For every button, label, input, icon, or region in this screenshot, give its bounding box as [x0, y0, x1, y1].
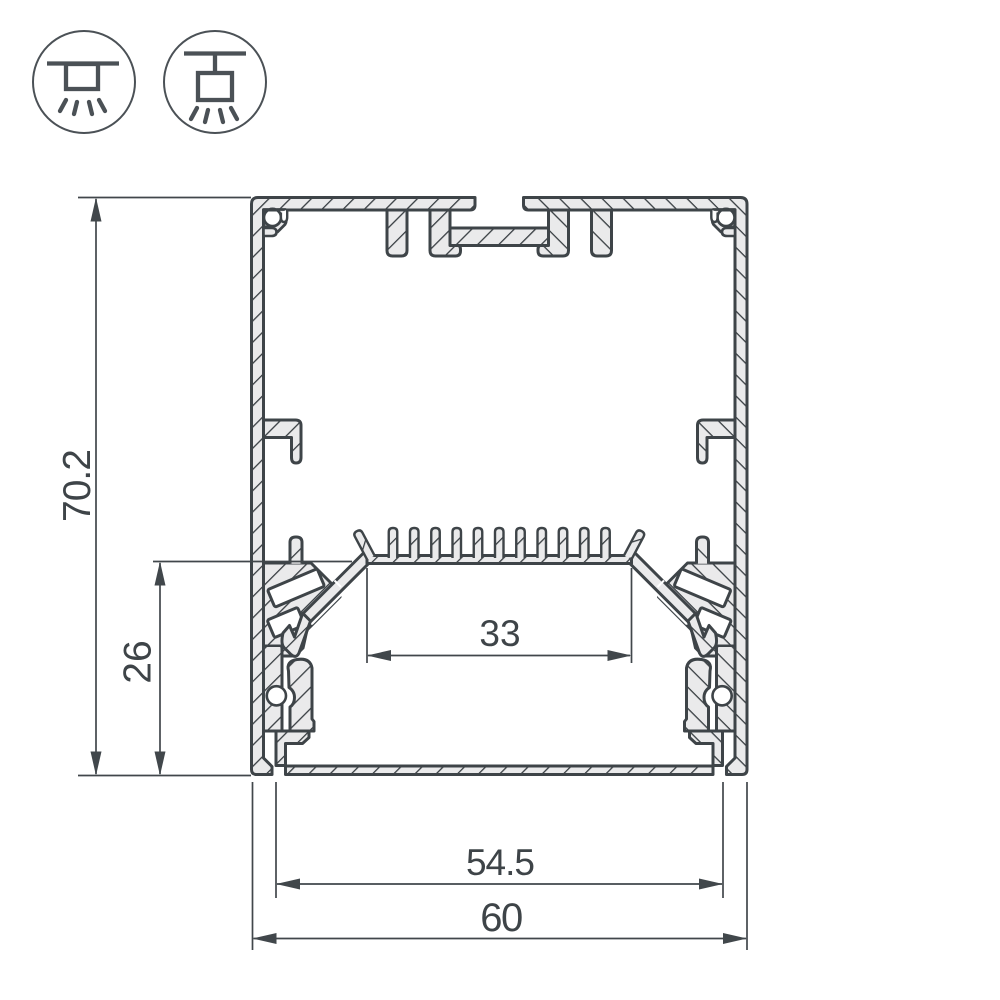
svg-text:26: 26 — [117, 640, 160, 683]
svg-text:70.2: 70.2 — [56, 450, 99, 522]
svg-text:54.5: 54.5 — [466, 842, 534, 883]
svg-text:33: 33 — [479, 613, 520, 654]
svg-text:60: 60 — [480, 896, 522, 940]
